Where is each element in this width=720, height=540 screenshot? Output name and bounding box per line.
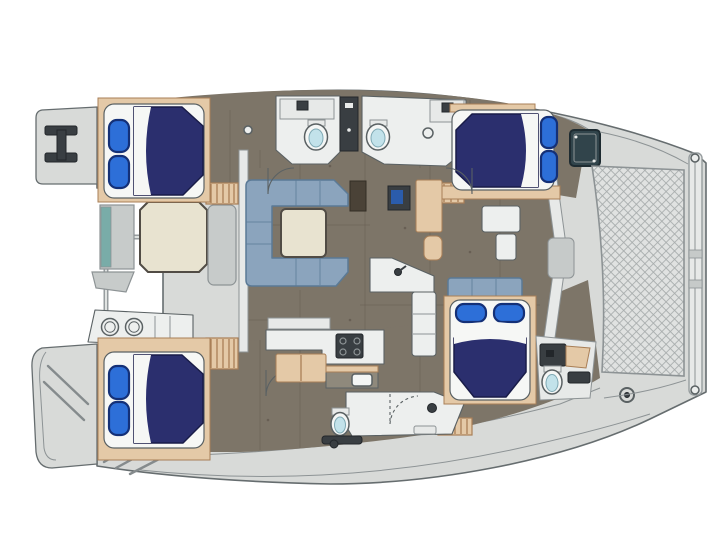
beam-end-fitting (691, 154, 699, 162)
floor-dot (469, 251, 472, 254)
aft-top-cabin (98, 98, 210, 202)
floor-dot (267, 419, 270, 422)
toilet-bowl (309, 129, 323, 147)
shower-control (347, 128, 351, 132)
chart-desk (416, 180, 442, 232)
hatch-hinge (593, 160, 596, 163)
bottom-forward-head (536, 336, 596, 400)
shower-bench (414, 426, 436, 434)
floor-dot (404, 227, 407, 230)
threshold (568, 372, 590, 383)
cleat-post (57, 130, 66, 160)
floor-dot (349, 319, 352, 322)
wardrobe (496, 234, 516, 260)
shower-column-vent (345, 103, 353, 108)
toilet-bowl (546, 375, 558, 392)
floor-plan-canvas (0, 0, 720, 540)
floor-dot (329, 165, 332, 168)
tv-cabinet (350, 181, 366, 211)
beam-fitting (689, 280, 702, 288)
shower-head (428, 404, 437, 413)
pillow (456, 304, 486, 322)
beam-fitting (689, 250, 702, 258)
forward-door (548, 238, 574, 278)
pillow (109, 402, 129, 435)
toilet-bowl (335, 417, 346, 433)
counter-wood-trim (326, 366, 378, 372)
desk-stool (424, 236, 442, 260)
hatch-hinge (575, 136, 578, 139)
cockpit-corner-seat (92, 272, 134, 292)
galley-cabinet-column (412, 292, 436, 356)
vanity-sink (546, 350, 554, 357)
trampoline-mesh (592, 166, 684, 376)
floor-drain (330, 440, 338, 448)
wood-corner-counter (566, 346, 590, 368)
pillow (109, 120, 129, 152)
toilet-bowl (371, 129, 385, 147)
wet-bar-burner (126, 319, 143, 336)
bench-cushion (101, 207, 111, 267)
porthole (244, 126, 252, 134)
screen-glass (391, 190, 403, 204)
wardrobe (482, 206, 520, 232)
galley-sink (352, 374, 372, 386)
threshold (322, 436, 362, 444)
aft-bottom-cabin (98, 338, 210, 460)
pillow (109, 366, 129, 399)
cockpit-storage-unit (208, 205, 236, 285)
upper-cabinet (268, 318, 330, 329)
coffee-table (281, 209, 326, 257)
pillow (494, 304, 524, 322)
pillow (541, 117, 557, 148)
beam-end-fitting (691, 386, 699, 394)
round-sink (423, 128, 433, 138)
faucet (297, 101, 308, 110)
pillow (541, 151, 557, 182)
wet-bar-burner (102, 319, 119, 336)
pillow (109, 156, 129, 188)
catamaran-floor-plan (0, 0, 720, 540)
cockpit-table (140, 202, 207, 272)
